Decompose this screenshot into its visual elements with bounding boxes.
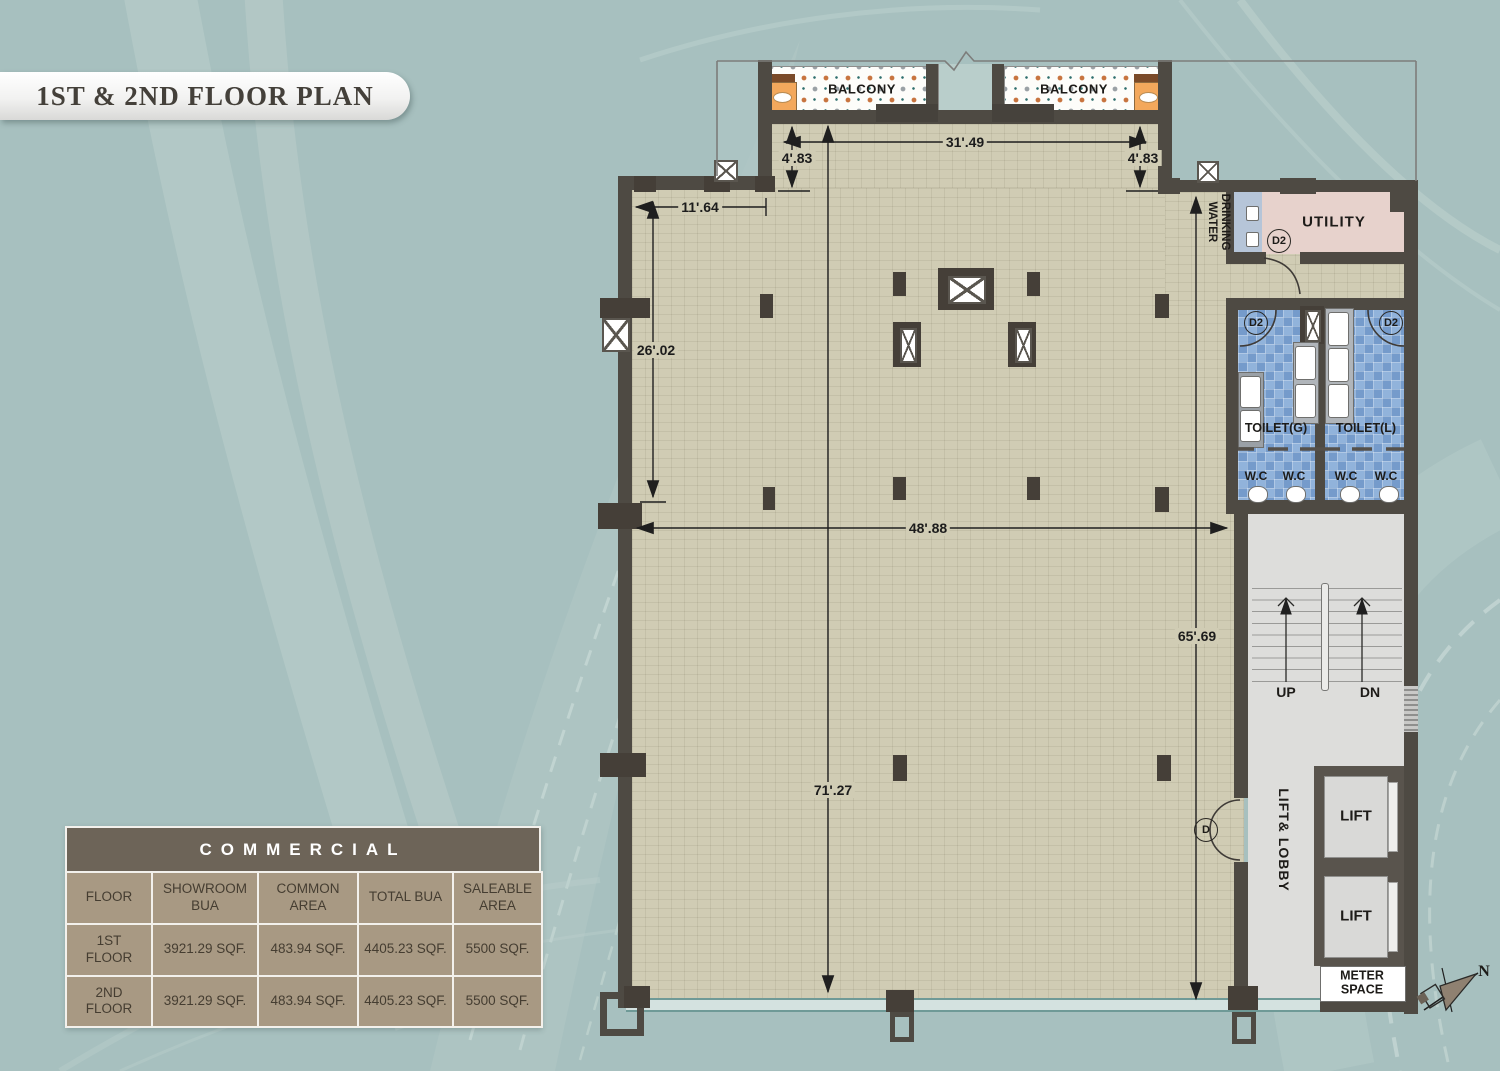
door-tag-d2: D2 — [1244, 311, 1268, 335]
room-label-utility: UTILITY — [1302, 213, 1366, 230]
room-label-wc: W.C — [1283, 470, 1306, 484]
cell-common-area: 483.94 SQF. — [258, 924, 358, 976]
room-label-toilet-l: TOILET(L) — [1336, 421, 1396, 435]
room-label-balcony-right: BALCONY — [1040, 83, 1108, 98]
compass-north-label: N — [1478, 963, 1490, 981]
floor-plan-page: { "title": "1ST & 2ND FLOOR PLAN", "comm… — [0, 0, 1500, 1071]
door-tag-d2: D2 — [1379, 311, 1403, 335]
room-label-wc: W.C — [1335, 470, 1358, 484]
column-header: TOTAL BUA — [358, 872, 453, 924]
cell-common-area: 483.94 SQF. — [258, 976, 358, 1028]
table-row: 2ND FLOOR 3921.29 SQF. 483.94 SQF. 4405.… — [66, 976, 542, 1028]
door-tag-d2: D2 — [1267, 229, 1291, 253]
cell-total-bua: 4405.23 SQF. — [358, 924, 453, 976]
room-label-lift-2: LIFT — [1340, 907, 1372, 924]
room-label-lift-lobby: LIFT& LOBBY — [1276, 788, 1292, 892]
room-label-balcony-left: BALCONY — [828, 83, 896, 98]
column-header: COMMON AREA — [258, 872, 358, 924]
cell-floor: 2ND FLOOR — [66, 976, 152, 1028]
dimension-left-height: 26'.02 — [634, 342, 678, 358]
page-title: 1ST & 2ND FLOOR PLAN — [36, 81, 374, 112]
dimension-top-width: 31'.49 — [943, 134, 987, 150]
dimension-mid-width: 48'.88 — [906, 520, 950, 536]
table-row: 1ST FLOOR 3921.29 SQF. 483.94 SQF. 4405.… — [66, 924, 542, 976]
room-label-lift-1: LIFT — [1340, 807, 1372, 824]
room-label-wc: W.C — [1375, 470, 1398, 484]
stair-label-up: UP — [1276, 684, 1295, 700]
projection-line — [717, 52, 1416, 181]
dimension-lines — [636, 126, 1227, 999]
stair-label-dn: DN — [1360, 684, 1380, 700]
room-label-wc: W.C — [1245, 470, 1268, 484]
cell-saleable-area: 5500 SQF. — [453, 976, 542, 1028]
dimension-recess-left: 4'.83 — [779, 150, 816, 166]
commercial-table: COMMERCIAL FLOOR SHOWROOM BUA COMMON ARE… — [65, 826, 541, 1028]
room-label-drinking-water: DRINKING WATER — [1205, 194, 1231, 251]
room-label-toilet-g: TOILET(G) — [1245, 421, 1307, 435]
column-header: SHOWROOM BUA — [152, 872, 258, 924]
table-title: COMMERCIAL — [65, 826, 541, 871]
cell-saleable-area: 5500 SQF. — [453, 924, 542, 976]
cell-showroom-bua: 3921.29 SQF. — [152, 924, 258, 976]
cell-showroom-bua: 3921.29 SQF. — [152, 976, 258, 1028]
dimension-top-left-width: 11'.64 — [678, 199, 722, 215]
door-swing-arcs — [1210, 258, 1404, 860]
dimension-full-height: 71'.27 — [811, 782, 855, 798]
room-label-meter-space: METER SPACE — [1340, 969, 1384, 998]
column-header: SALEABLE AREA — [453, 872, 542, 924]
door-tag-d: D — [1194, 818, 1218, 842]
stair-walk-lines — [1278, 598, 1370, 682]
dimension-recess-right: 4'.83 — [1125, 150, 1162, 166]
table-header-row: FLOOR SHOWROOM BUA COMMON AREA TOTAL BUA… — [66, 872, 542, 924]
cell-total-bua: 4405.23 SQF. — [358, 976, 453, 1028]
dimension-right-height: 65'.69 — [1175, 628, 1219, 644]
north-arrow-icon — [1416, 968, 1478, 1012]
cell-floor: 1ST FLOOR — [66, 924, 152, 976]
title-ribbon: 1ST & 2ND FLOOR PLAN — [0, 72, 410, 120]
column-header: FLOOR — [66, 872, 152, 924]
